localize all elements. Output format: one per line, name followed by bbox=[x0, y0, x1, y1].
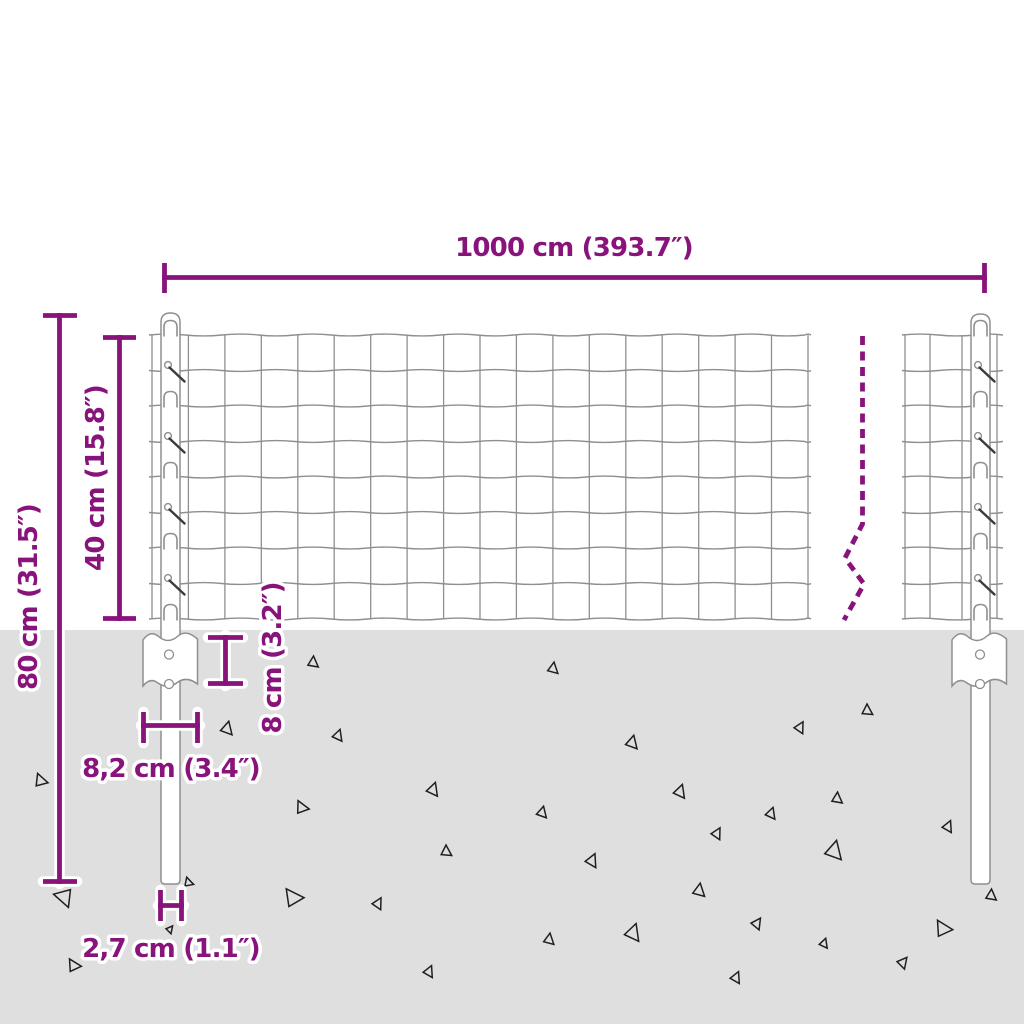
wire-mesh-left-panel bbox=[149, 334, 811, 620]
label-plate-depth: 8 cm (3.2″) bbox=[258, 582, 288, 733]
plate-hole bbox=[165, 650, 174, 659]
fence-dimension-diagram: 1000 cm (393.7″) 80 cm (31.5″) 40 cm (15… bbox=[0, 0, 1024, 1024]
label-total-width: 1000 cm (393.7″) bbox=[455, 233, 693, 263]
label-mesh-height: 40 cm (15.8″) bbox=[81, 385, 111, 571]
label-plate-width: 8,2 cm (3.4″) bbox=[82, 754, 260, 784]
post-left-anchor-plate bbox=[143, 633, 198, 686]
post-right-anchor-plate bbox=[952, 633, 1007, 686]
panel-break-dashed-line bbox=[844, 336, 864, 620]
label-post-diameter: 2,7 cm (1.1″) bbox=[82, 934, 260, 964]
plate-hole bbox=[976, 650, 985, 659]
ground-area bbox=[0, 630, 1024, 1024]
label-post-height: 80 cm (31.5″) bbox=[14, 504, 44, 690]
dimension-total-width bbox=[162, 263, 987, 293]
plate-hole bbox=[976, 680, 985, 689]
plate-hole bbox=[165, 680, 174, 689]
diagram-svg: 1000 cm (393.7″) 80 cm (31.5″) 40 cm (15… bbox=[0, 0, 1024, 1024]
